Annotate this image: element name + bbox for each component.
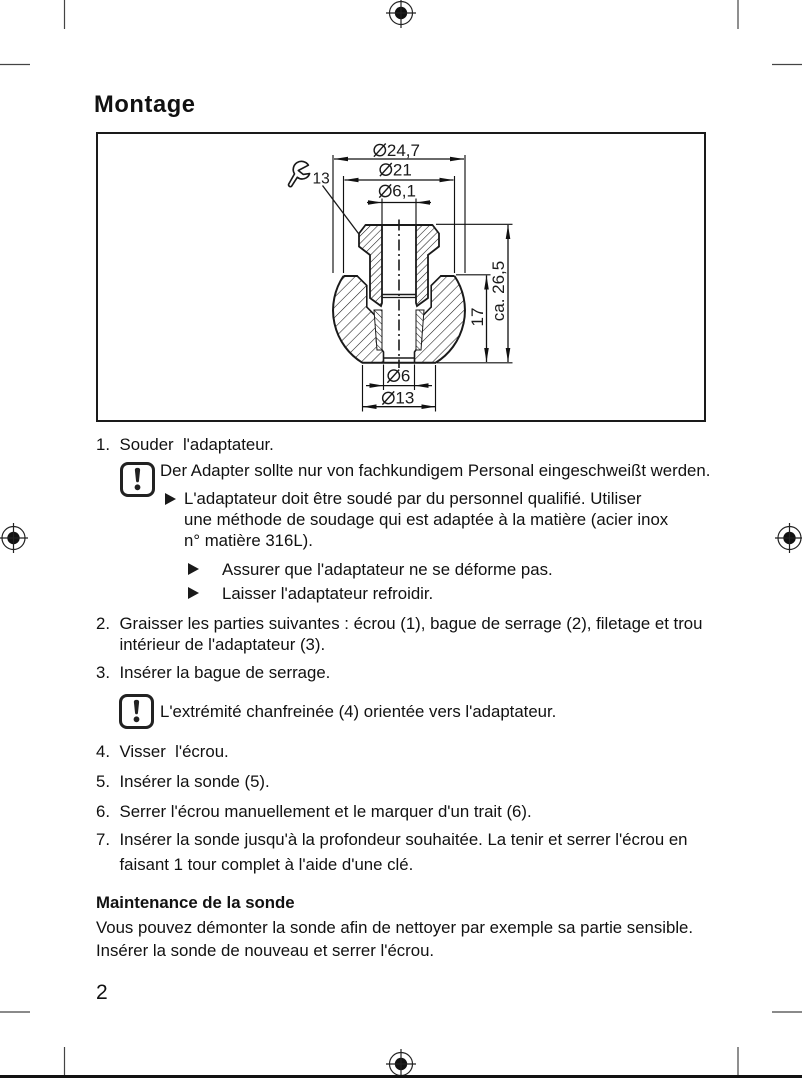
svg-text:13: 13 — [313, 171, 330, 188]
svg-text:ca. 26,5: ca. 26,5 — [489, 261, 508, 322]
svg-text:21: 21 — [393, 160, 412, 179]
svg-text:6,1: 6,1 — [392, 182, 416, 201]
svg-text:13: 13 — [395, 389, 414, 408]
svg-text:17: 17 — [468, 308, 487, 327]
svg-text:6: 6 — [401, 366, 410, 385]
svg-text:24,7: 24,7 — [387, 141, 420, 160]
